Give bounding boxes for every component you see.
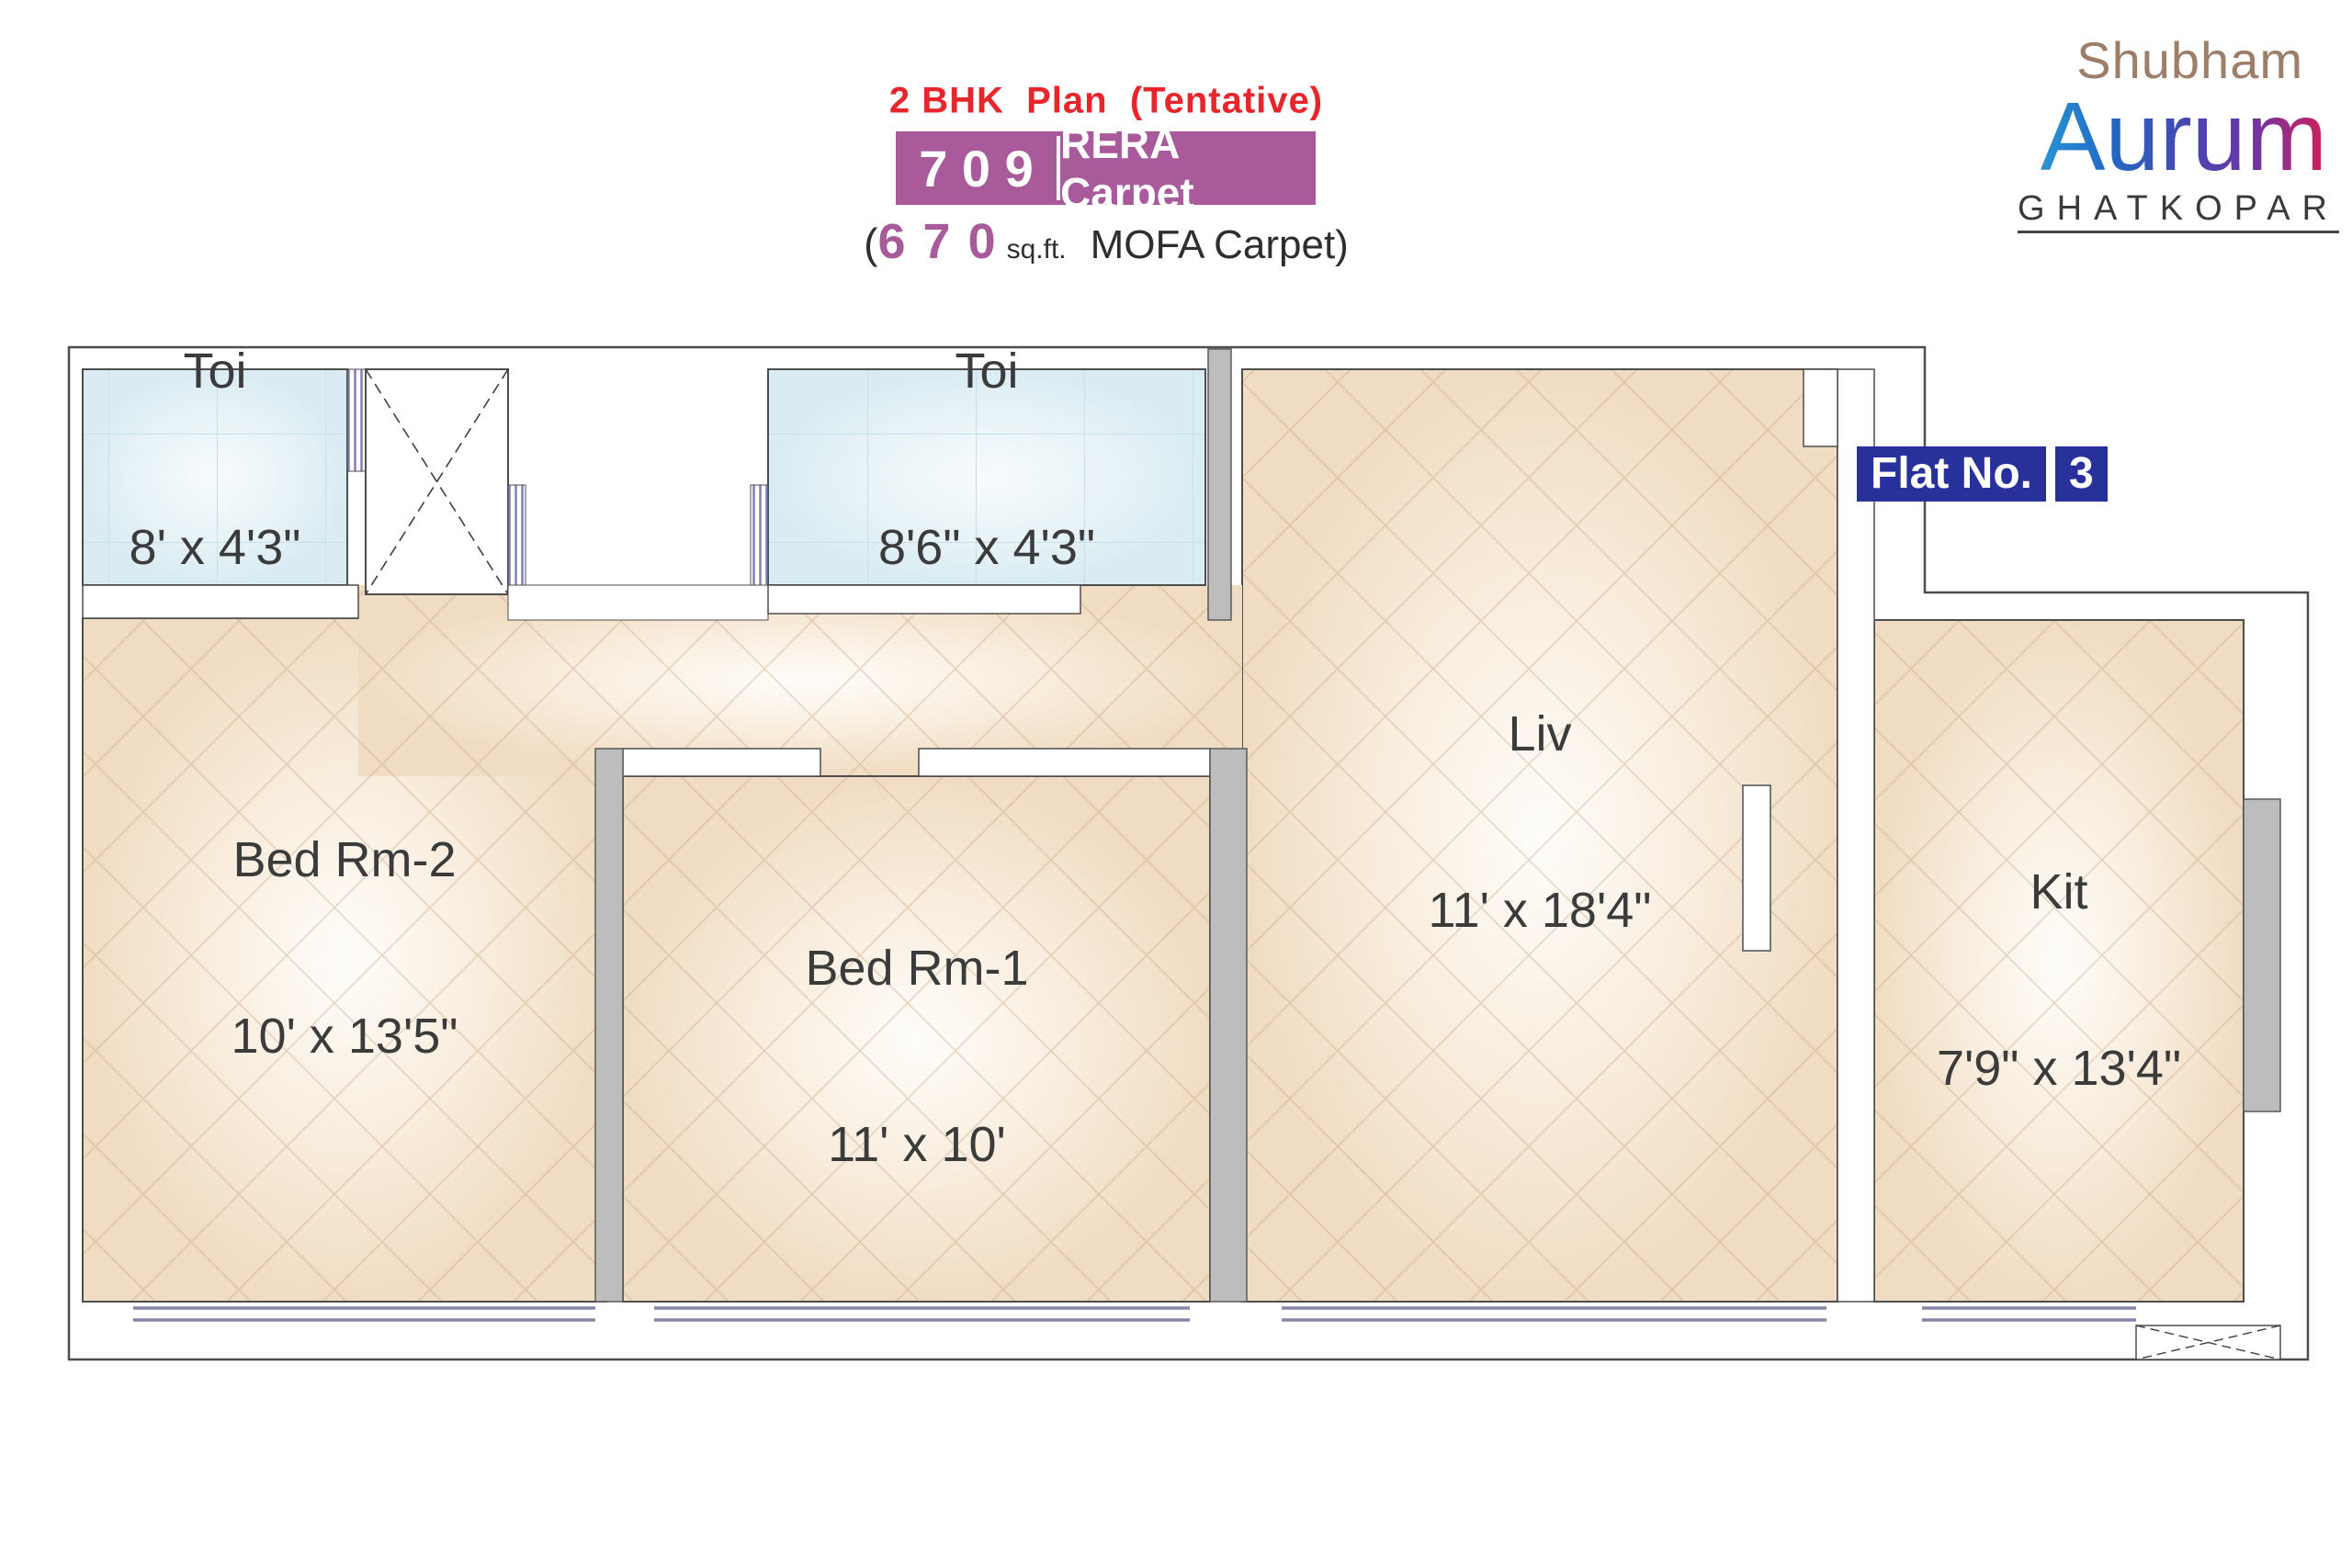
gray-wall-bedroom1-left [595, 749, 623, 1302]
gray-duct-kitchen-right [2244, 799, 2280, 1111]
room-name: Toi [130, 342, 301, 400]
logo-location: GHATKOPAR [2018, 191, 2339, 233]
room-label-bedroom-2: Bed Rm-2 10' x 13'5" [232, 713, 458, 1183]
logo-project-name: Aurum [2018, 88, 2327, 186]
room-name: Bed Rm-1 [805, 939, 1028, 998]
door-jamb-toilet-2 [751, 485, 768, 585]
room-dims: 8' x 4'3" [130, 518, 301, 577]
rera-carpet-value: 7 0 9 [896, 131, 1057, 205]
bedroom-1-top-wall-left [623, 749, 820, 776]
lift-shaft [366, 369, 508, 594]
logo-brand-name: Shubham [2018, 35, 2303, 86]
lift-lobby-wall [508, 585, 768, 620]
page-title: 2 BHK Plan (Tentative) [889, 81, 1323, 122]
rera-carpet-box: 7 0 9 RERA Carpet [896, 131, 1316, 205]
flat-number-badge: Flat No. 3 [1857, 446, 2108, 502]
room-label-kitchen: Kit 7'9" x 13'4" [1937, 745, 2181, 1215]
bedroom-1-top-wall-right [919, 749, 1210, 776]
room-dims: 10' x 13'5" [232, 1007, 458, 1066]
developer-logo: Shubham Aurum GHATKOPAR [2018, 35, 2327, 233]
flat-badge-number: 3 [2055, 446, 2108, 502]
room-dims: 11' x 18'4" [1429, 881, 1652, 940]
mofa-carpet-label: MOFA Carpet) [1091, 222, 1349, 268]
duct-box-bottom-right [2136, 1325, 2280, 1359]
mofa-open-paren: ( [864, 219, 877, 268]
room-dims: 11' x 10' [805, 1115, 1028, 1174]
living-kitchen-wall [1837, 369, 1874, 1302]
room-dims: 7'9" x 13'4" [1937, 1039, 2181, 1098]
room-label-bedroom-1: Bed Rm-1 11' x 10' [805, 821, 1028, 1292]
gray-wall-bedroom1-right [1210, 749, 1247, 1302]
door-jamb-lift-lobby [508, 485, 526, 585]
room-label-toilet-1: Toi 8' x 4'3" [130, 224, 301, 694]
room-name: Liv [1429, 705, 1652, 763]
living-room-corner-notch [1804, 369, 1837, 446]
kitchen-door-leaf [1743, 785, 1770, 951]
room-dims: 8'6" x 4'3" [878, 518, 1095, 577]
rera-carpet-label: RERA Carpet [1060, 131, 1316, 205]
room-name: Bed Rm-2 [232, 830, 458, 889]
gray-wall-toilet2-living [1208, 349, 1231, 620]
room-label-living: Liv 11' x 18'4" [1429, 587, 1652, 1057]
flat-badge-label: Flat No. [1857, 446, 2046, 502]
floor-plan-page: 2 BHK Plan (Tentative) 7 0 9 RERA Carpet… [0, 0, 2352, 1568]
room-name: Kit [1937, 863, 2181, 921]
door-jamb-toilet-1 [347, 369, 366, 471]
room-label-toilet-2: Toi 8'6" x 4'3" [878, 224, 1095, 694]
room-name: Toi [878, 342, 1095, 400]
